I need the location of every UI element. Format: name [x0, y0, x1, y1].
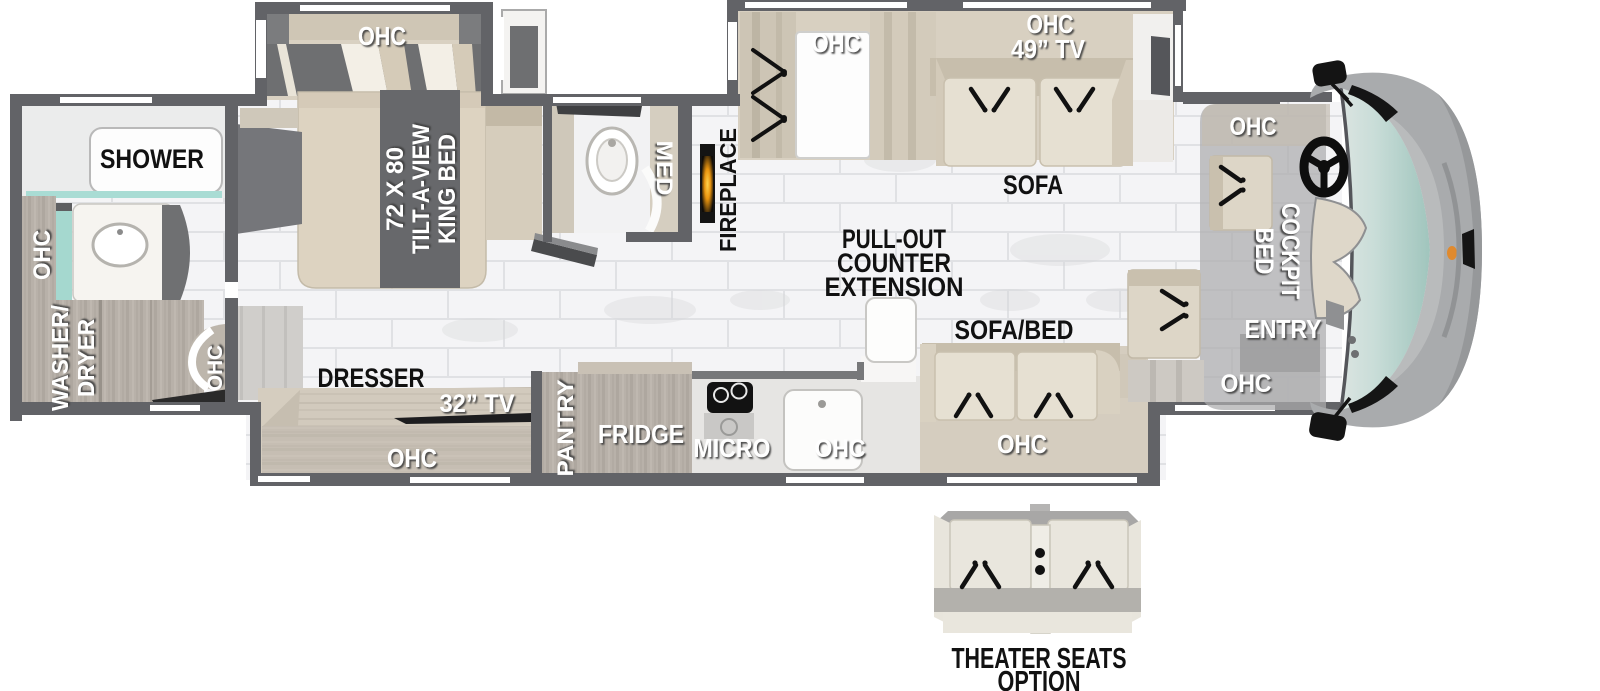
svg-text:OHC: OHC — [29, 230, 56, 280]
svg-text:SHOWER: SHOWER — [100, 144, 204, 174]
svg-text:PANTRY: PANTRY — [553, 379, 578, 476]
svg-text:TILT-A-VIEW: TILT-A-VIEW — [408, 124, 435, 254]
svg-text:FRIDGE: FRIDGE — [598, 419, 684, 449]
svg-text:49” TV: 49” TV — [1011, 34, 1086, 64]
svg-text:OPTION: OPTION — [998, 666, 1081, 691]
svg-text:KING BED: KING BED — [434, 134, 461, 244]
svg-text:SOFA/BED: SOFA/BED — [955, 315, 1074, 345]
svg-text:72 X 80: 72 X 80 — [382, 147, 409, 231]
svg-text:OHC: OHC — [387, 443, 437, 473]
svg-text:DRYER: DRYER — [73, 319, 99, 397]
svg-text:OHC: OHC — [358, 21, 406, 51]
svg-text:DRESSER: DRESSER — [318, 363, 425, 393]
svg-text:OHC: OHC — [1230, 113, 1277, 141]
svg-text:32” TV: 32” TV — [440, 390, 515, 418]
svg-text:OHC: OHC — [1221, 370, 1272, 398]
svg-text:OHC: OHC — [815, 435, 866, 463]
svg-text:MED: MED — [652, 141, 677, 196]
svg-text:FIREPLACE: FIREPLACE — [715, 128, 741, 252]
svg-text:SOFA: SOFA — [1003, 170, 1063, 200]
svg-text:OHC: OHC — [204, 345, 227, 391]
svg-text:MICRO: MICRO — [694, 433, 771, 463]
svg-text:COCKPIT: COCKPIT — [1276, 203, 1304, 299]
svg-text:WASHER/: WASHER/ — [47, 304, 73, 411]
svg-text:ENTRY: ENTRY — [1245, 314, 1322, 344]
svg-text:OHC: OHC — [812, 28, 861, 58]
svg-text:BED: BED — [1250, 228, 1278, 275]
svg-text:EXTENSION: EXTENSION — [825, 272, 964, 302]
svg-text:OHC: OHC — [997, 429, 1047, 459]
